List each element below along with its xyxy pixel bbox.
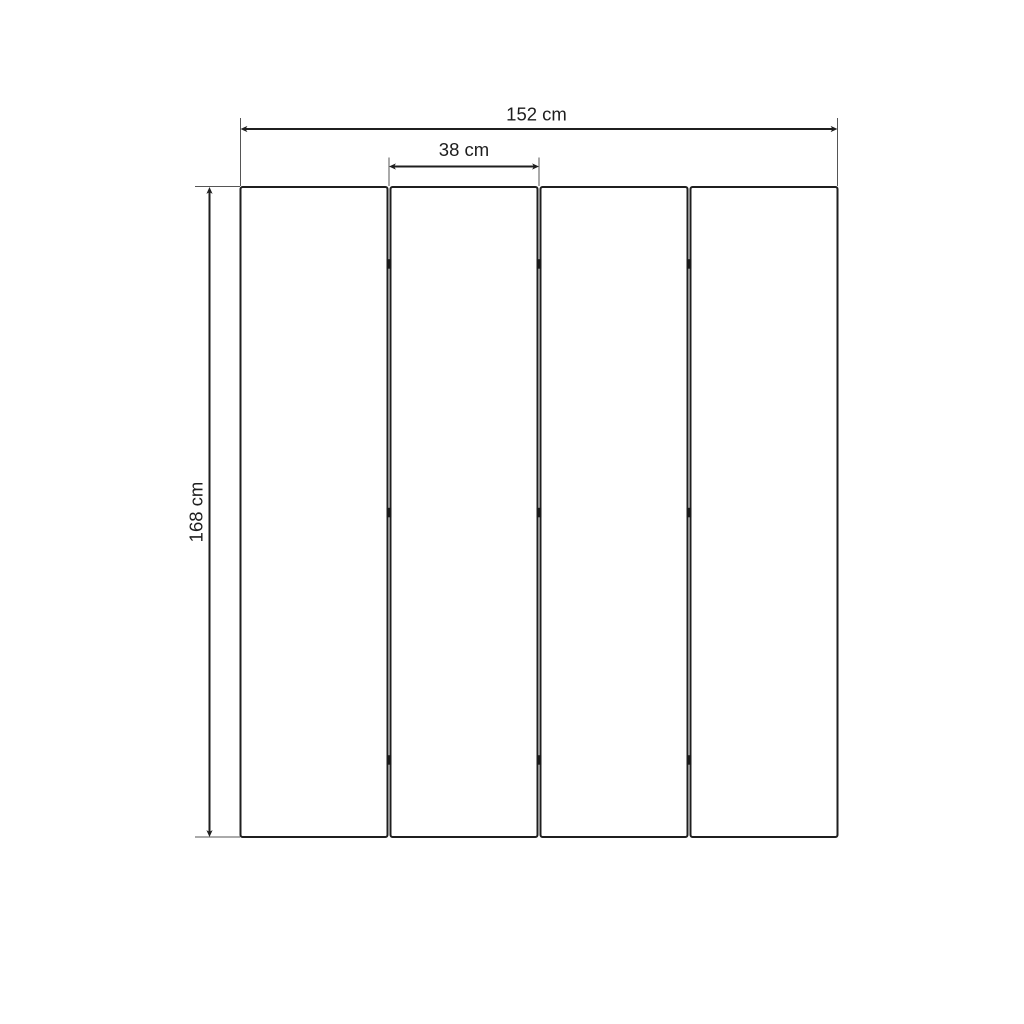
- svg-text:152 cm: 152 cm: [506, 104, 567, 125]
- svg-text:38 cm: 38 cm: [439, 139, 489, 160]
- svg-text:168 cm: 168 cm: [186, 482, 207, 543]
